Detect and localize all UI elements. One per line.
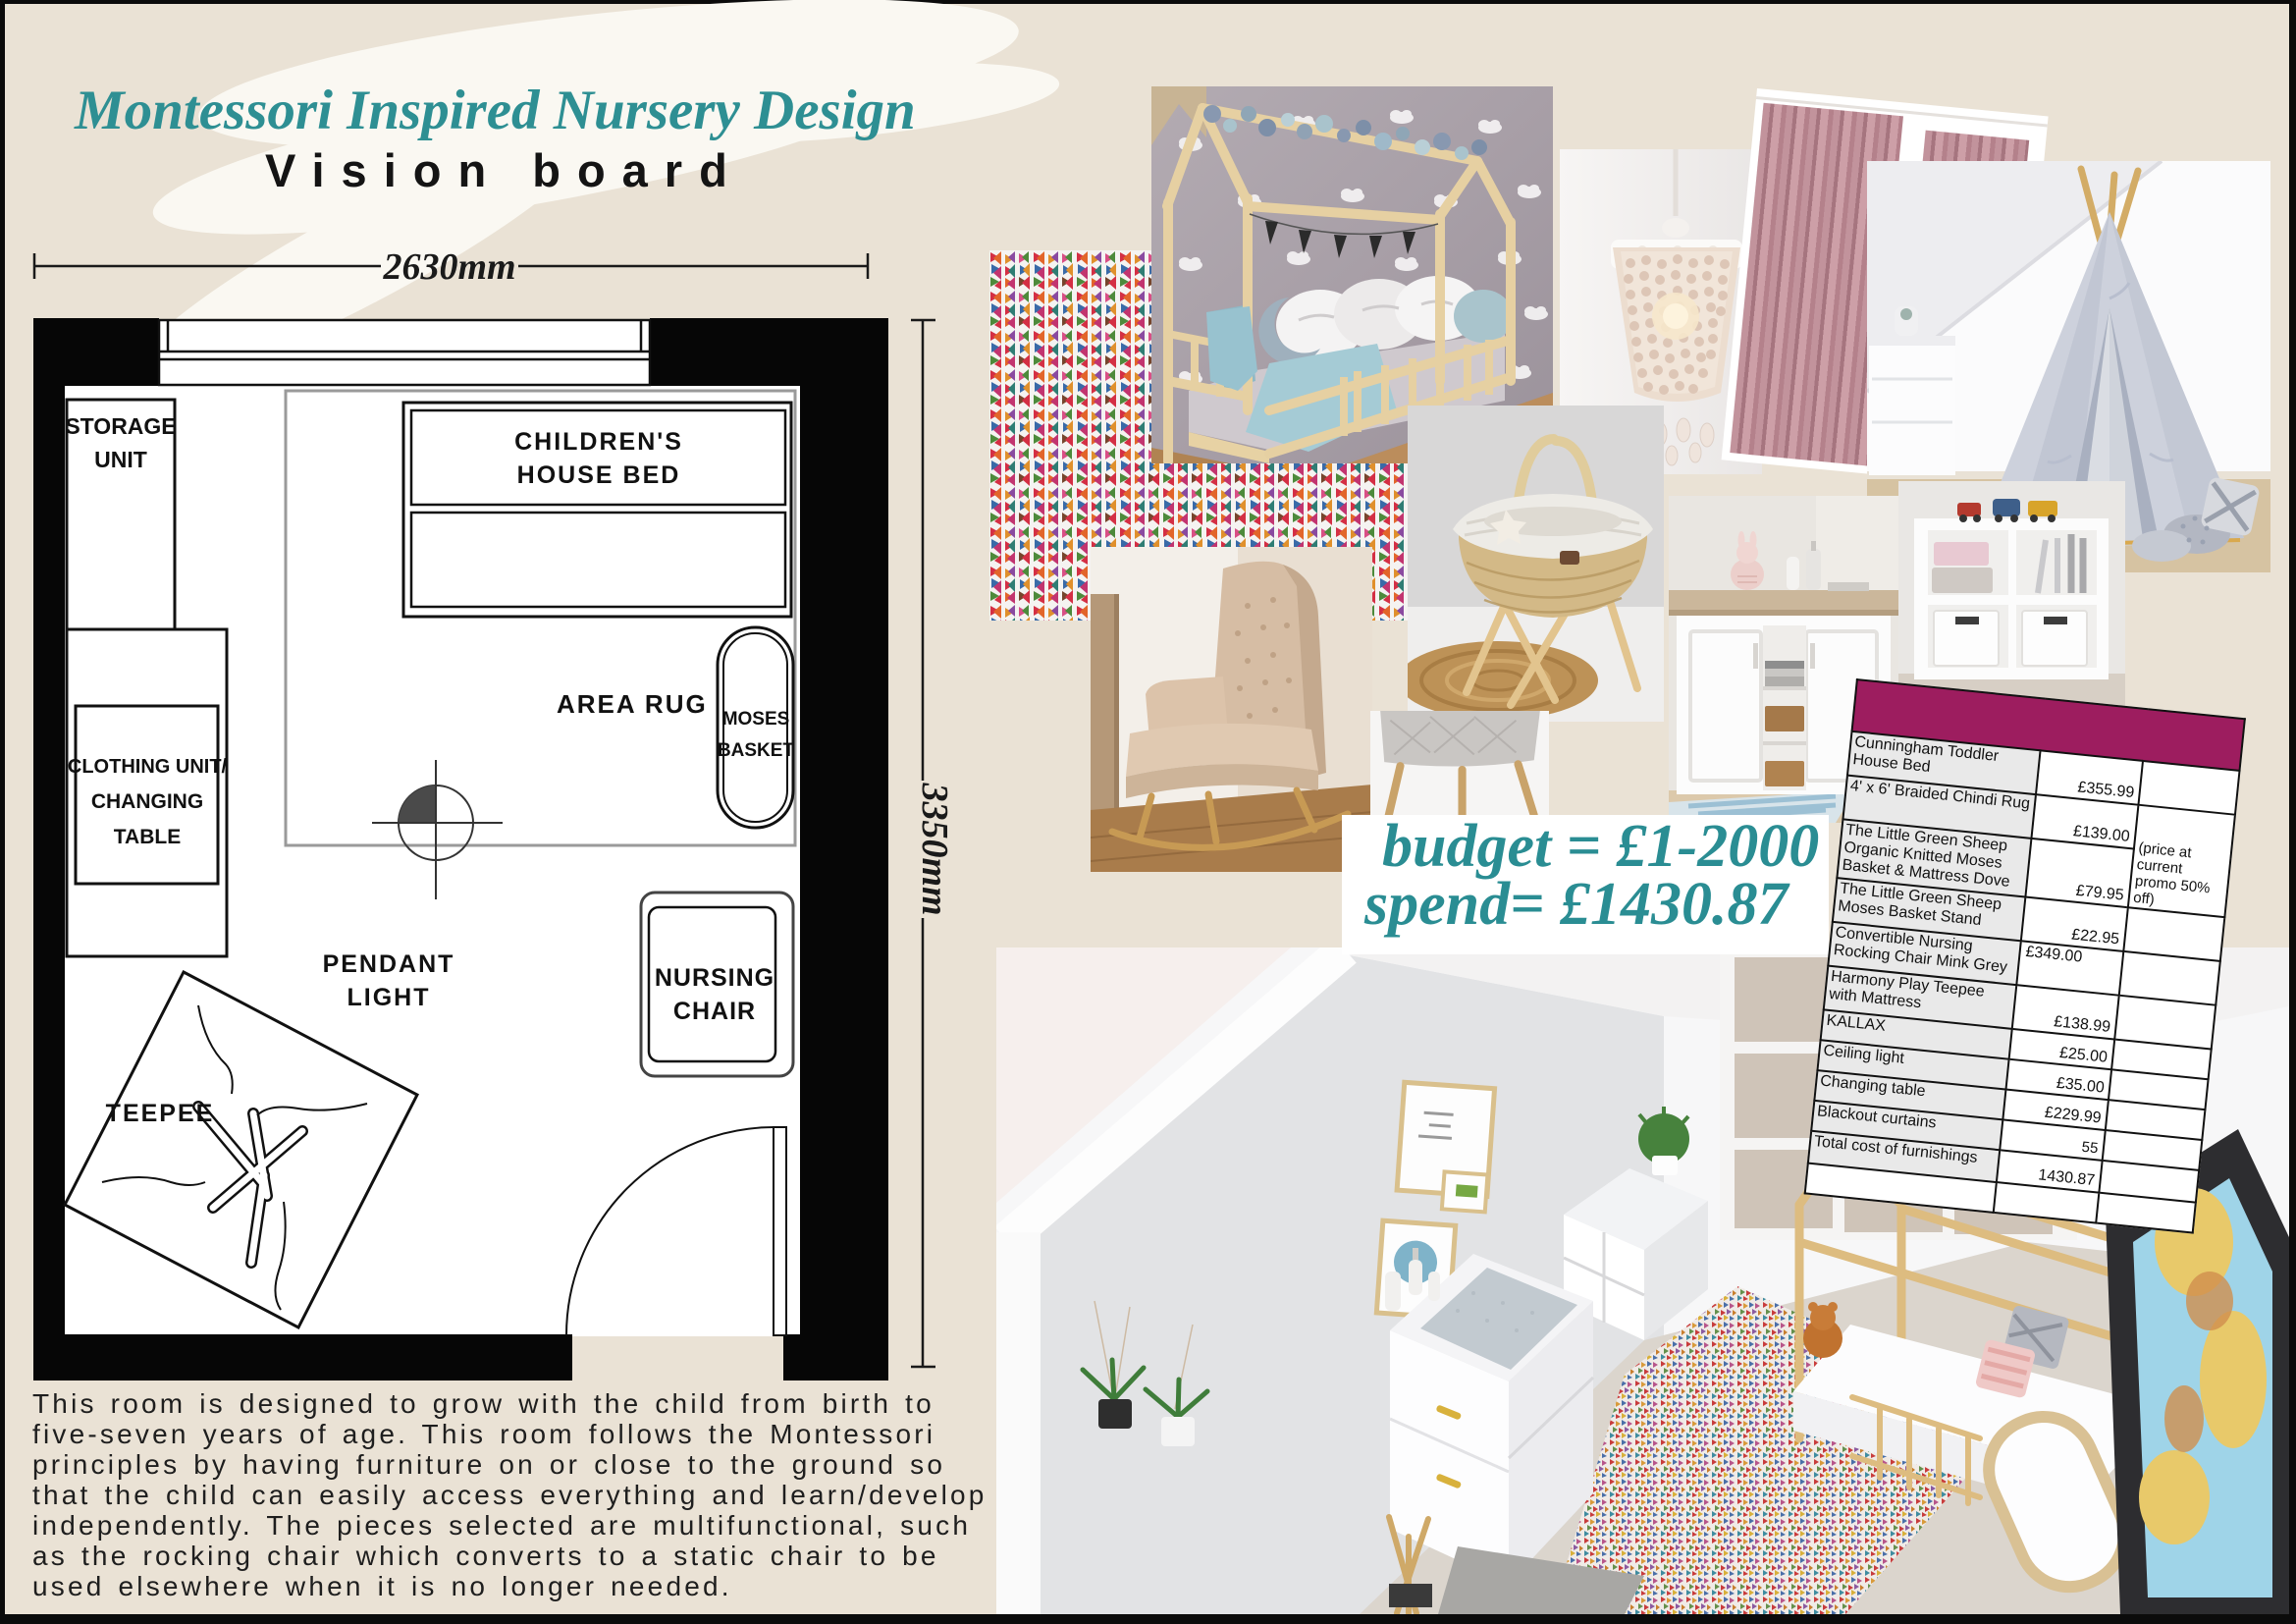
svg-text:CHILDREN'S: CHILDREN'S	[514, 428, 683, 456]
svg-text:NURSING: NURSING	[655, 964, 774, 992]
svg-text:HOUSE BED: HOUSE BED	[517, 461, 681, 489]
svg-text:MOSES: MOSES	[722, 709, 790, 730]
svg-text:CHANGING: CHANGING	[91, 790, 203, 813]
svg-text:PENDANT: PENDANT	[323, 950, 455, 978]
svg-text:AREA RUG: AREA RUG	[557, 689, 708, 719]
svg-text:UNIT: UNIT	[94, 447, 147, 472]
svg-text:2630mm: 2630mm	[382, 246, 515, 288]
svg-text:CLOTHING UNIT/: CLOTHING UNIT/	[68, 756, 228, 778]
svg-text:CHAIR: CHAIR	[673, 998, 756, 1025]
svg-text:3350mm: 3350mm	[914, 782, 955, 915]
svg-text:BASKET: BASKET	[718, 740, 795, 761]
svg-text:TABLE: TABLE	[114, 826, 181, 848]
svg-text:LIGHT: LIGHT	[347, 984, 431, 1011]
svg-text:STORAGE: STORAGE	[65, 413, 176, 439]
svg-text:TEEPEE: TEEPEE	[106, 1100, 215, 1127]
